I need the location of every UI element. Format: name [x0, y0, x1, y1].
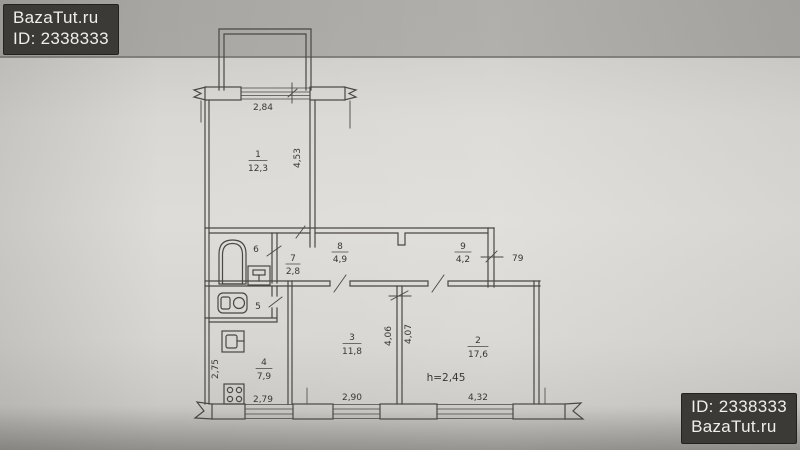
room2-right-wall — [534, 281, 539, 404]
room3-width-dim: 2,90 — [342, 393, 362, 403]
bathtub-icon — [219, 240, 246, 284]
room1-area: 12,3 — [248, 164, 268, 174]
room9-area: 4,2 — [456, 255, 470, 265]
watermark-top-left: BazaTut.ru ID: 2338333 — [3, 4, 119, 55]
room2-width-dim: 4,32 — [468, 393, 488, 403]
dimension-ticks-top — [201, 83, 350, 128]
balcony-window — [241, 88, 310, 99]
room3-depth-dim: 4,06 — [384, 326, 394, 346]
stove-icon — [224, 384, 244, 404]
room6-number: 6 — [253, 245, 259, 255]
room2-depth-dim: 4,07 — [404, 324, 414, 344]
room3-number: 3 — [349, 333, 355, 343]
room3-room2-wall — [397, 286, 402, 404]
room4-area: 7,9 — [257, 372, 272, 382]
floor-plan-drawing: 1 12,3 4,53 6 7 2,8 8 4,9 9 4,2 79 5 4 7… — [0, 0, 800, 450]
room5-number: 5 — [255, 302, 261, 312]
hall-side-dim: 79 — [512, 254, 524, 264]
room1-depth-dim: 4,53 — [293, 148, 303, 168]
room4-number: 4 — [261, 358, 267, 368]
room9-number: 9 — [460, 242, 466, 252]
bath-hall-divider — [272, 233, 277, 283]
room3-room2-tick — [389, 291, 411, 300]
wall-break-bottom-right-icon — [565, 403, 583, 419]
wall-break-top-left-icon — [194, 87, 206, 100]
balcony-window-dim: 2,84 — [253, 103, 273, 113]
watermark-site: BazaTut.ru — [13, 8, 109, 29]
toilet-icon — [218, 293, 247, 313]
fraction-lines — [249, 161, 488, 369]
wall-break-top-right-icon — [344, 87, 356, 100]
corridor-side-tick — [481, 251, 503, 262]
room2-number: 2 — [475, 336, 481, 346]
corridor-top-wall — [205, 228, 494, 245]
top-window-piers — [205, 87, 345, 100]
bathroom-sink-icon — [248, 266, 270, 285]
room7-number: 7 — [290, 254, 296, 264]
kitchen-sink-icon — [222, 331, 244, 352]
toilet-walls — [205, 286, 277, 322]
kitchen-room3-wall — [288, 281, 292, 404]
room8-number: 8 — [337, 242, 343, 252]
left-exterior-wall — [205, 100, 209, 404]
balcony-walls — [219, 29, 311, 90]
ceiling-height-note: h=2,45 — [427, 372, 466, 384]
floor-plan-photo: 1 12,3 4,53 6 7 2,8 8 4,9 9 4,2 79 5 4 7… — [0, 0, 800, 450]
room7-area: 2,8 — [286, 267, 301, 277]
kitchen-depth-dim: 2,75 — [211, 359, 221, 379]
watermark-site: BazaTut.ru — [691, 417, 787, 438]
room3-area: 11,8 — [342, 347, 362, 357]
room2-area: 17,6 — [468, 350, 488, 360]
watermark-id: ID: 2338333 — [13, 29, 109, 50]
room1-right-wall — [310, 100, 315, 247]
room8-area: 4,9 — [333, 255, 348, 265]
kitchen-width-dim: 2,79 — [253, 395, 273, 405]
watermark-id: ID: 2338333 — [691, 397, 787, 418]
room1-number: 1 — [255, 150, 261, 160]
watermark-bottom-right: ID: 2338333 BazaTut.ru — [681, 393, 797, 444]
